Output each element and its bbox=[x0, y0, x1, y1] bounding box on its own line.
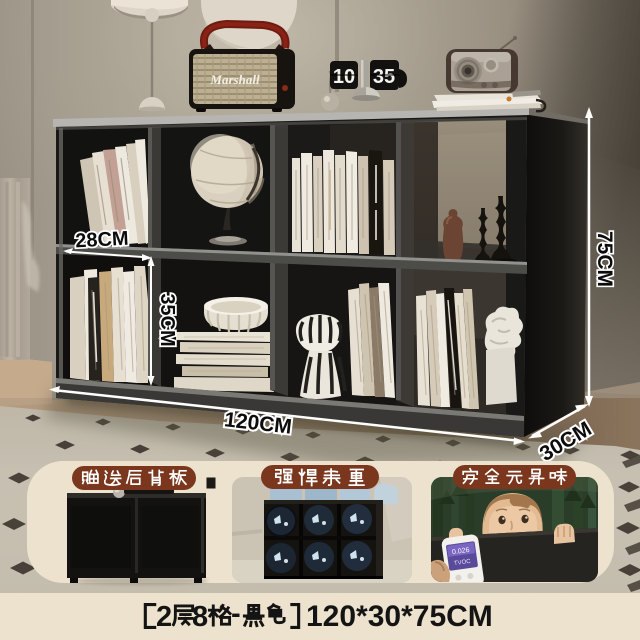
svg-text:-: - bbox=[231, 598, 241, 630]
svg-text:Marshall: Marshall bbox=[209, 72, 260, 87]
svg-text:120*30*75CM: 120*30*75CM bbox=[306, 600, 493, 633]
svg-text:75CM: 75CM bbox=[593, 231, 616, 287]
svg-text:28CM: 28CM bbox=[75, 228, 129, 253]
svg-text:35CM: 35CM bbox=[156, 293, 178, 346]
svg-text:2: 2 bbox=[156, 601, 172, 633]
svg-text:35: 35 bbox=[373, 66, 395, 88]
svg-text:8: 8 bbox=[192, 601, 208, 633]
svg-text:10: 10 bbox=[333, 66, 355, 88]
